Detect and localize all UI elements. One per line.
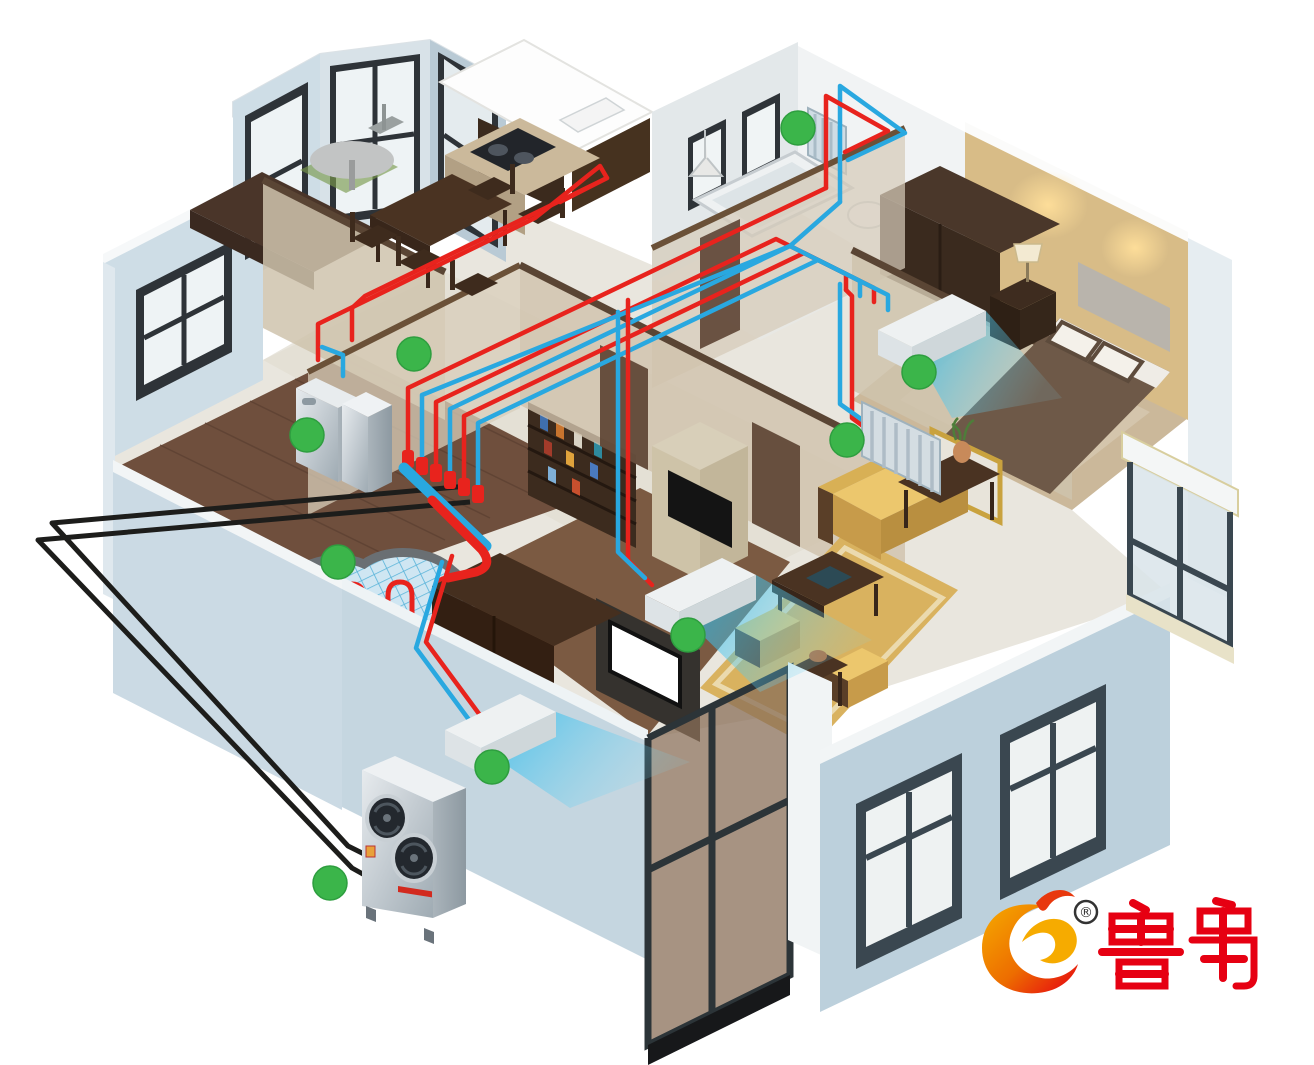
fan [391,833,437,883]
fireplace-tv [652,422,748,580]
status-marker [475,750,509,784]
status-marker [313,866,347,900]
status-marker [290,418,324,452]
fan [365,794,409,842]
outdoor-heat-pump-unit [362,756,466,944]
vase [953,441,971,463]
svg-text:®: ® [1079,905,1093,921]
status-marker [397,337,431,371]
brand-logo: ® 鲁禹 [982,890,1260,994]
status-marker [781,111,815,145]
status-marker [671,618,705,652]
brand-text: 鲁禹 [1100,901,1260,994]
sliding-glass-door [648,668,790,1065]
illustration-canvas: Isometric cutaway illustration of an apa… [0,0,1314,1065]
status-marker [830,423,864,457]
status-marker [902,355,936,389]
status-marker [321,545,355,579]
registered-mark: ® [1075,901,1097,923]
